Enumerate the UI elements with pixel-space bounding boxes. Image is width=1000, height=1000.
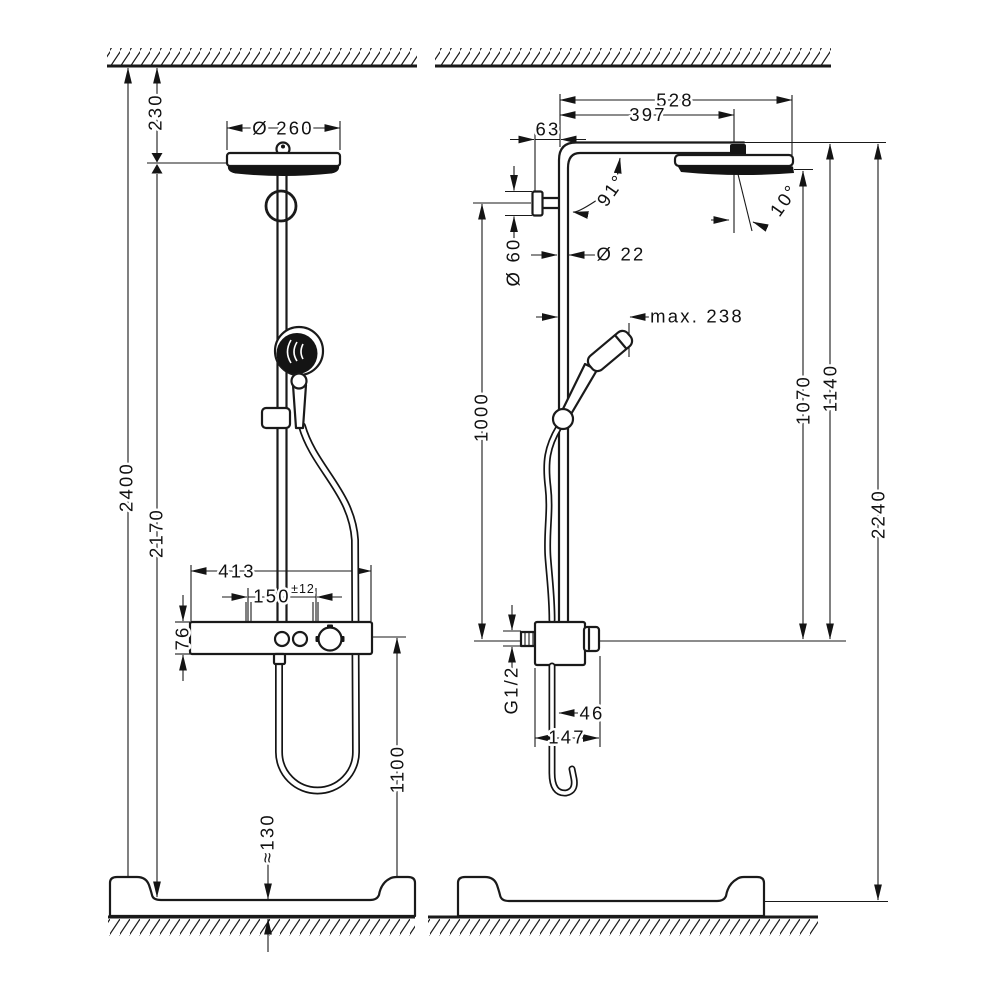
dim-ceiling-offset: 230 (145, 93, 166, 130)
dim-handshower-projection: max. 238 (650, 306, 744, 327)
select-button (275, 632, 289, 646)
overhead-shower-front (227, 143, 340, 222)
front-view: 2400 2170 230 Ø 260 413 150 ±12 76 1100 … (110, 68, 415, 952)
wall-bracket-side (533, 192, 560, 216)
valve-side (521, 622, 599, 665)
shower-system-dimension-drawing: 2400 2170 230 Ø 260 413 150 ±12 76 1100 … (0, 0, 1000, 1000)
dim-valve-depth: 147 (548, 727, 585, 748)
side-view: 528 397 63 91° 10° Ø 60 Ø 22 max. 238 10… (458, 90, 889, 917)
dim-wall-offset: 63 (536, 119, 561, 140)
hand-shower-side (553, 328, 635, 429)
slider-bracket (262, 408, 290, 428)
dim-head-diameter: Ø 260 (252, 118, 313, 139)
dim-valve-width: 413 (218, 561, 255, 582)
dim-head-tilt: 10° (765, 180, 802, 220)
shower-tray-side (458, 877, 764, 916)
dim-head-underside-height: 2170 (146, 508, 167, 558)
temperature-knob (319, 628, 342, 651)
dim-valve-height: 76 (172, 626, 193, 651)
dim-overall-height: 2400 (116, 462, 137, 512)
hose-nipple (274, 654, 285, 664)
dim-head-center-projection: 397 (629, 104, 666, 125)
dim-arm-angle: 91° (592, 170, 629, 210)
dim-hose-offset: 46 (580, 703, 605, 724)
escutcheon (533, 192, 543, 216)
ceiling-hatch (107, 48, 831, 66)
dim-valve-center-height: 1100 (387, 745, 408, 794)
dim-unit-height: 2240 (868, 489, 889, 539)
dim-inlet-spacing: 150 (253, 586, 290, 607)
handle (293, 385, 306, 428)
swivel-joint (292, 374, 307, 389)
valve-knob (584, 627, 599, 651)
dim-inlet-tolerance: ±12 (291, 582, 315, 596)
arm-ring-front (266, 191, 296, 221)
dim-tray-step-height: ≈130 (257, 813, 278, 863)
dim-arm-top-height: 1140 (820, 364, 841, 413)
hand-shower-front (262, 327, 323, 428)
dim-connection-thread: G1/2 (501, 666, 522, 715)
select-button (293, 632, 307, 646)
shower-hose-side (547, 427, 559, 620)
holder-pivot (553, 409, 573, 429)
technical-drawing-page: 2400 2170 230 Ø 260 413 150 ±12 76 1100 … (0, 0, 1000, 1000)
thermostat-front (190, 602, 372, 664)
overhead-shower-side (675, 155, 794, 175)
dim-head-bottom-height: 1070 (793, 375, 814, 425)
floor-hatch (108, 917, 818, 936)
riser-pipe-front (278, 170, 287, 621)
dim-bracket-to-valve: 1000 (471, 392, 492, 442)
dim-pipe-diameter: Ø 22 (597, 244, 646, 265)
dim-escutcheon-diameter: Ø 60 (503, 238, 524, 287)
shower-tray-front (110, 877, 415, 916)
